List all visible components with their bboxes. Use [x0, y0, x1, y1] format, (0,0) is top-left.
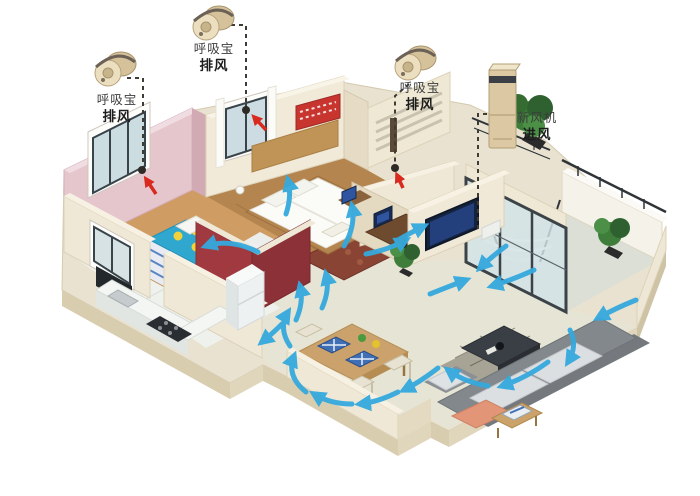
exhaust-label-2-line1: 呼吸宝 — [194, 42, 235, 56]
floorplan-illustration — [0, 0, 700, 496]
ventilation-floorplan: 呼吸宝 排风 呼吸宝 排风 呼吸宝 排风 新风机 进风 — [0, 0, 700, 496]
exhaust-device-3-icon — [395, 46, 436, 80]
exhaust-device-2-icon — [193, 6, 234, 40]
exhaust-label-1-line2: 排风 — [74, 108, 160, 126]
exhaust-label-3-line1: 呼吸宝 — [400, 81, 441, 95]
exhaust-label-2-line2: 排风 — [171, 57, 257, 75]
exhaust-label-3-line2: 排风 — [377, 96, 463, 114]
ceiling-vent-dot — [138, 166, 146, 174]
fresh-air-label-line1: 新风机 — [517, 111, 558, 125]
exhaust-label-1-line1: 呼吸宝 — [97, 93, 138, 107]
bedside-lamp — [236, 186, 244, 194]
ceiling-vent-dot — [242, 106, 250, 114]
ceiling-vent-dot — [391, 164, 399, 172]
exhaust-label-2: 呼吸宝 排风 — [171, 41, 257, 75]
exhaust-label-1: 呼吸宝 排风 — [74, 92, 160, 126]
fresh-air-label: 新风机 进风 — [494, 110, 580, 144]
exhaust-label-3: 呼吸宝 排风 — [377, 80, 463, 114]
exhaust-device-1-icon — [95, 52, 136, 86]
fresh-air-label-line2: 进风 — [494, 126, 580, 144]
